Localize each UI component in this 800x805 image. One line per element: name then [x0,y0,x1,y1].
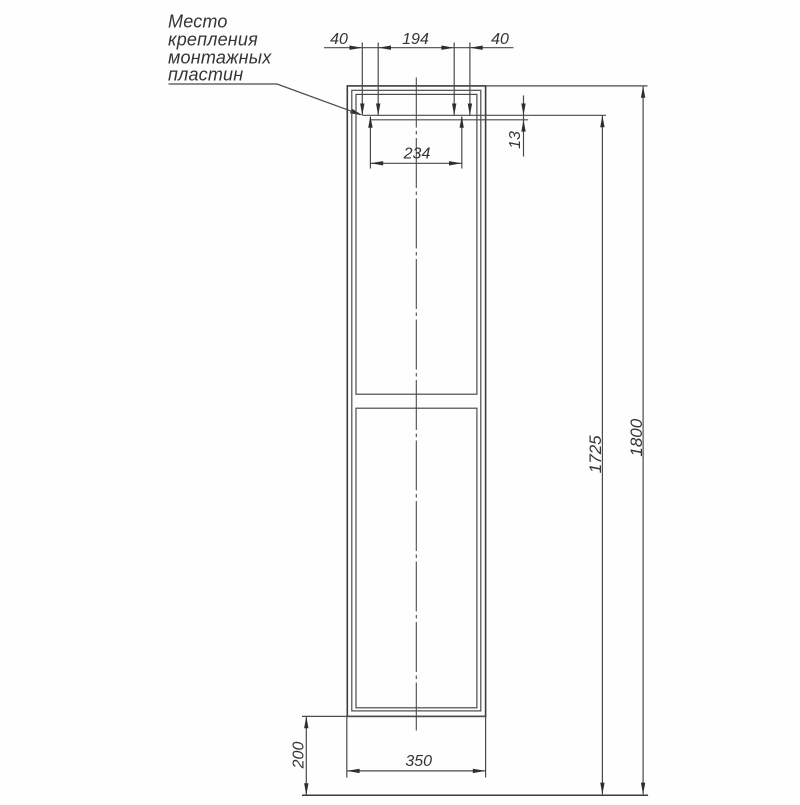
svg-text:40: 40 [491,31,509,48]
svg-text:350: 350 [405,753,432,770]
svg-text:пластин: пластин [168,65,243,85]
svg-text:200: 200 [290,742,307,770]
svg-text:13: 13 [507,131,524,149]
svg-text:194: 194 [402,31,429,48]
svg-text:1725: 1725 [586,435,605,473]
svg-text:Место: Место [168,12,228,32]
svg-text:крепления: крепления [168,30,258,50]
svg-text:40: 40 [330,31,348,48]
svg-text:1800: 1800 [627,418,646,456]
svg-text:234: 234 [403,146,431,163]
